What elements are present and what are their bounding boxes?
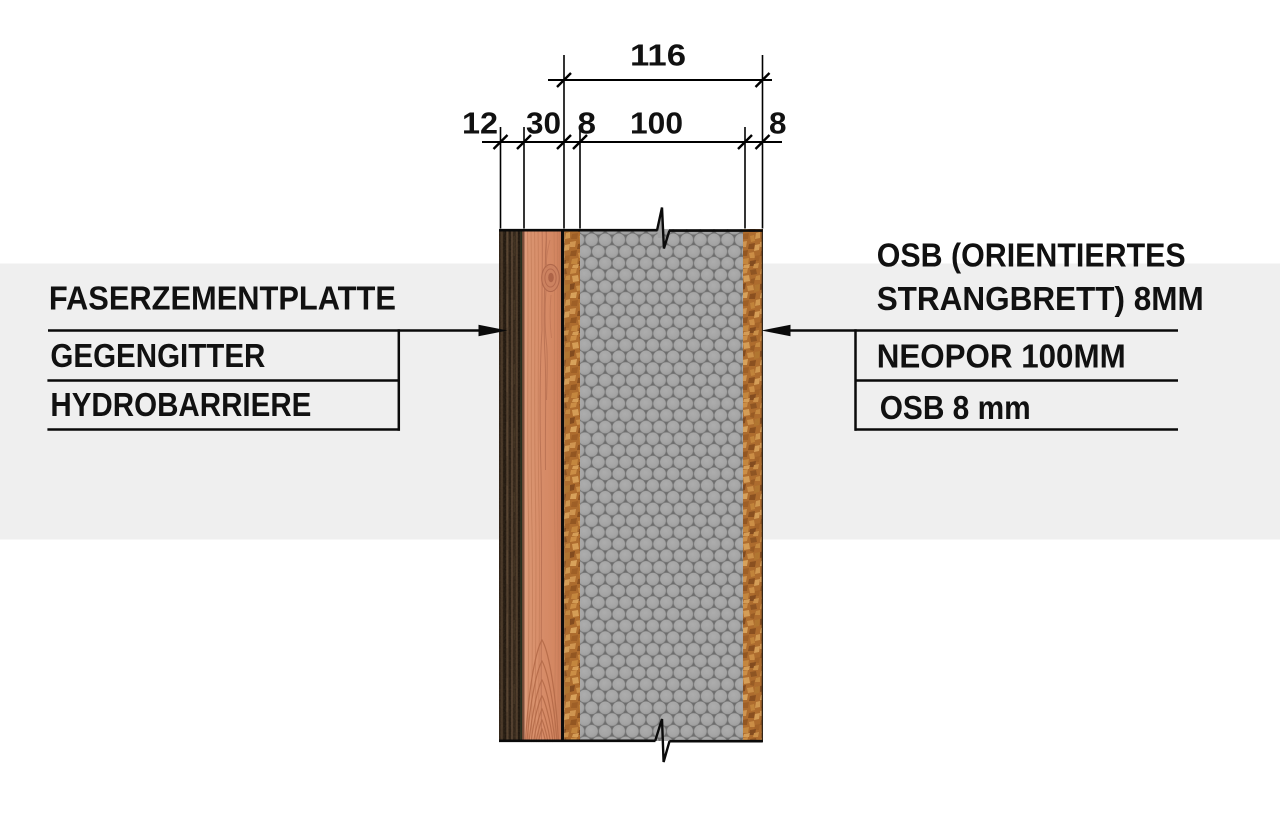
svg-text:STRANGBRETT) 8MM: STRANGBRETT) 8MM xyxy=(877,280,1204,317)
svg-text:HYDROBARRIERE: HYDROBARRIERE xyxy=(50,386,311,423)
svg-text:8: 8 xyxy=(578,106,597,141)
svg-text:OSB (ORIENTIERTES: OSB (ORIENTIERTES xyxy=(877,236,1186,273)
svg-text:116: 116 xyxy=(630,38,686,73)
svg-text:GEGENGITTER: GEGENGITTER xyxy=(50,337,265,374)
svg-text:OSB 8 mm: OSB 8 mm xyxy=(880,389,1031,426)
svg-text:12: 12 xyxy=(462,106,498,141)
svg-text:FASERZEMENTPLATTE: FASERZEMENTPLATTE xyxy=(49,279,396,316)
svg-text:NEOPOR 100MM: NEOPOR 100MM xyxy=(877,337,1126,374)
svg-text:100: 100 xyxy=(630,106,683,141)
svg-text:8: 8 xyxy=(769,106,787,141)
svg-text:30: 30 xyxy=(526,106,561,141)
